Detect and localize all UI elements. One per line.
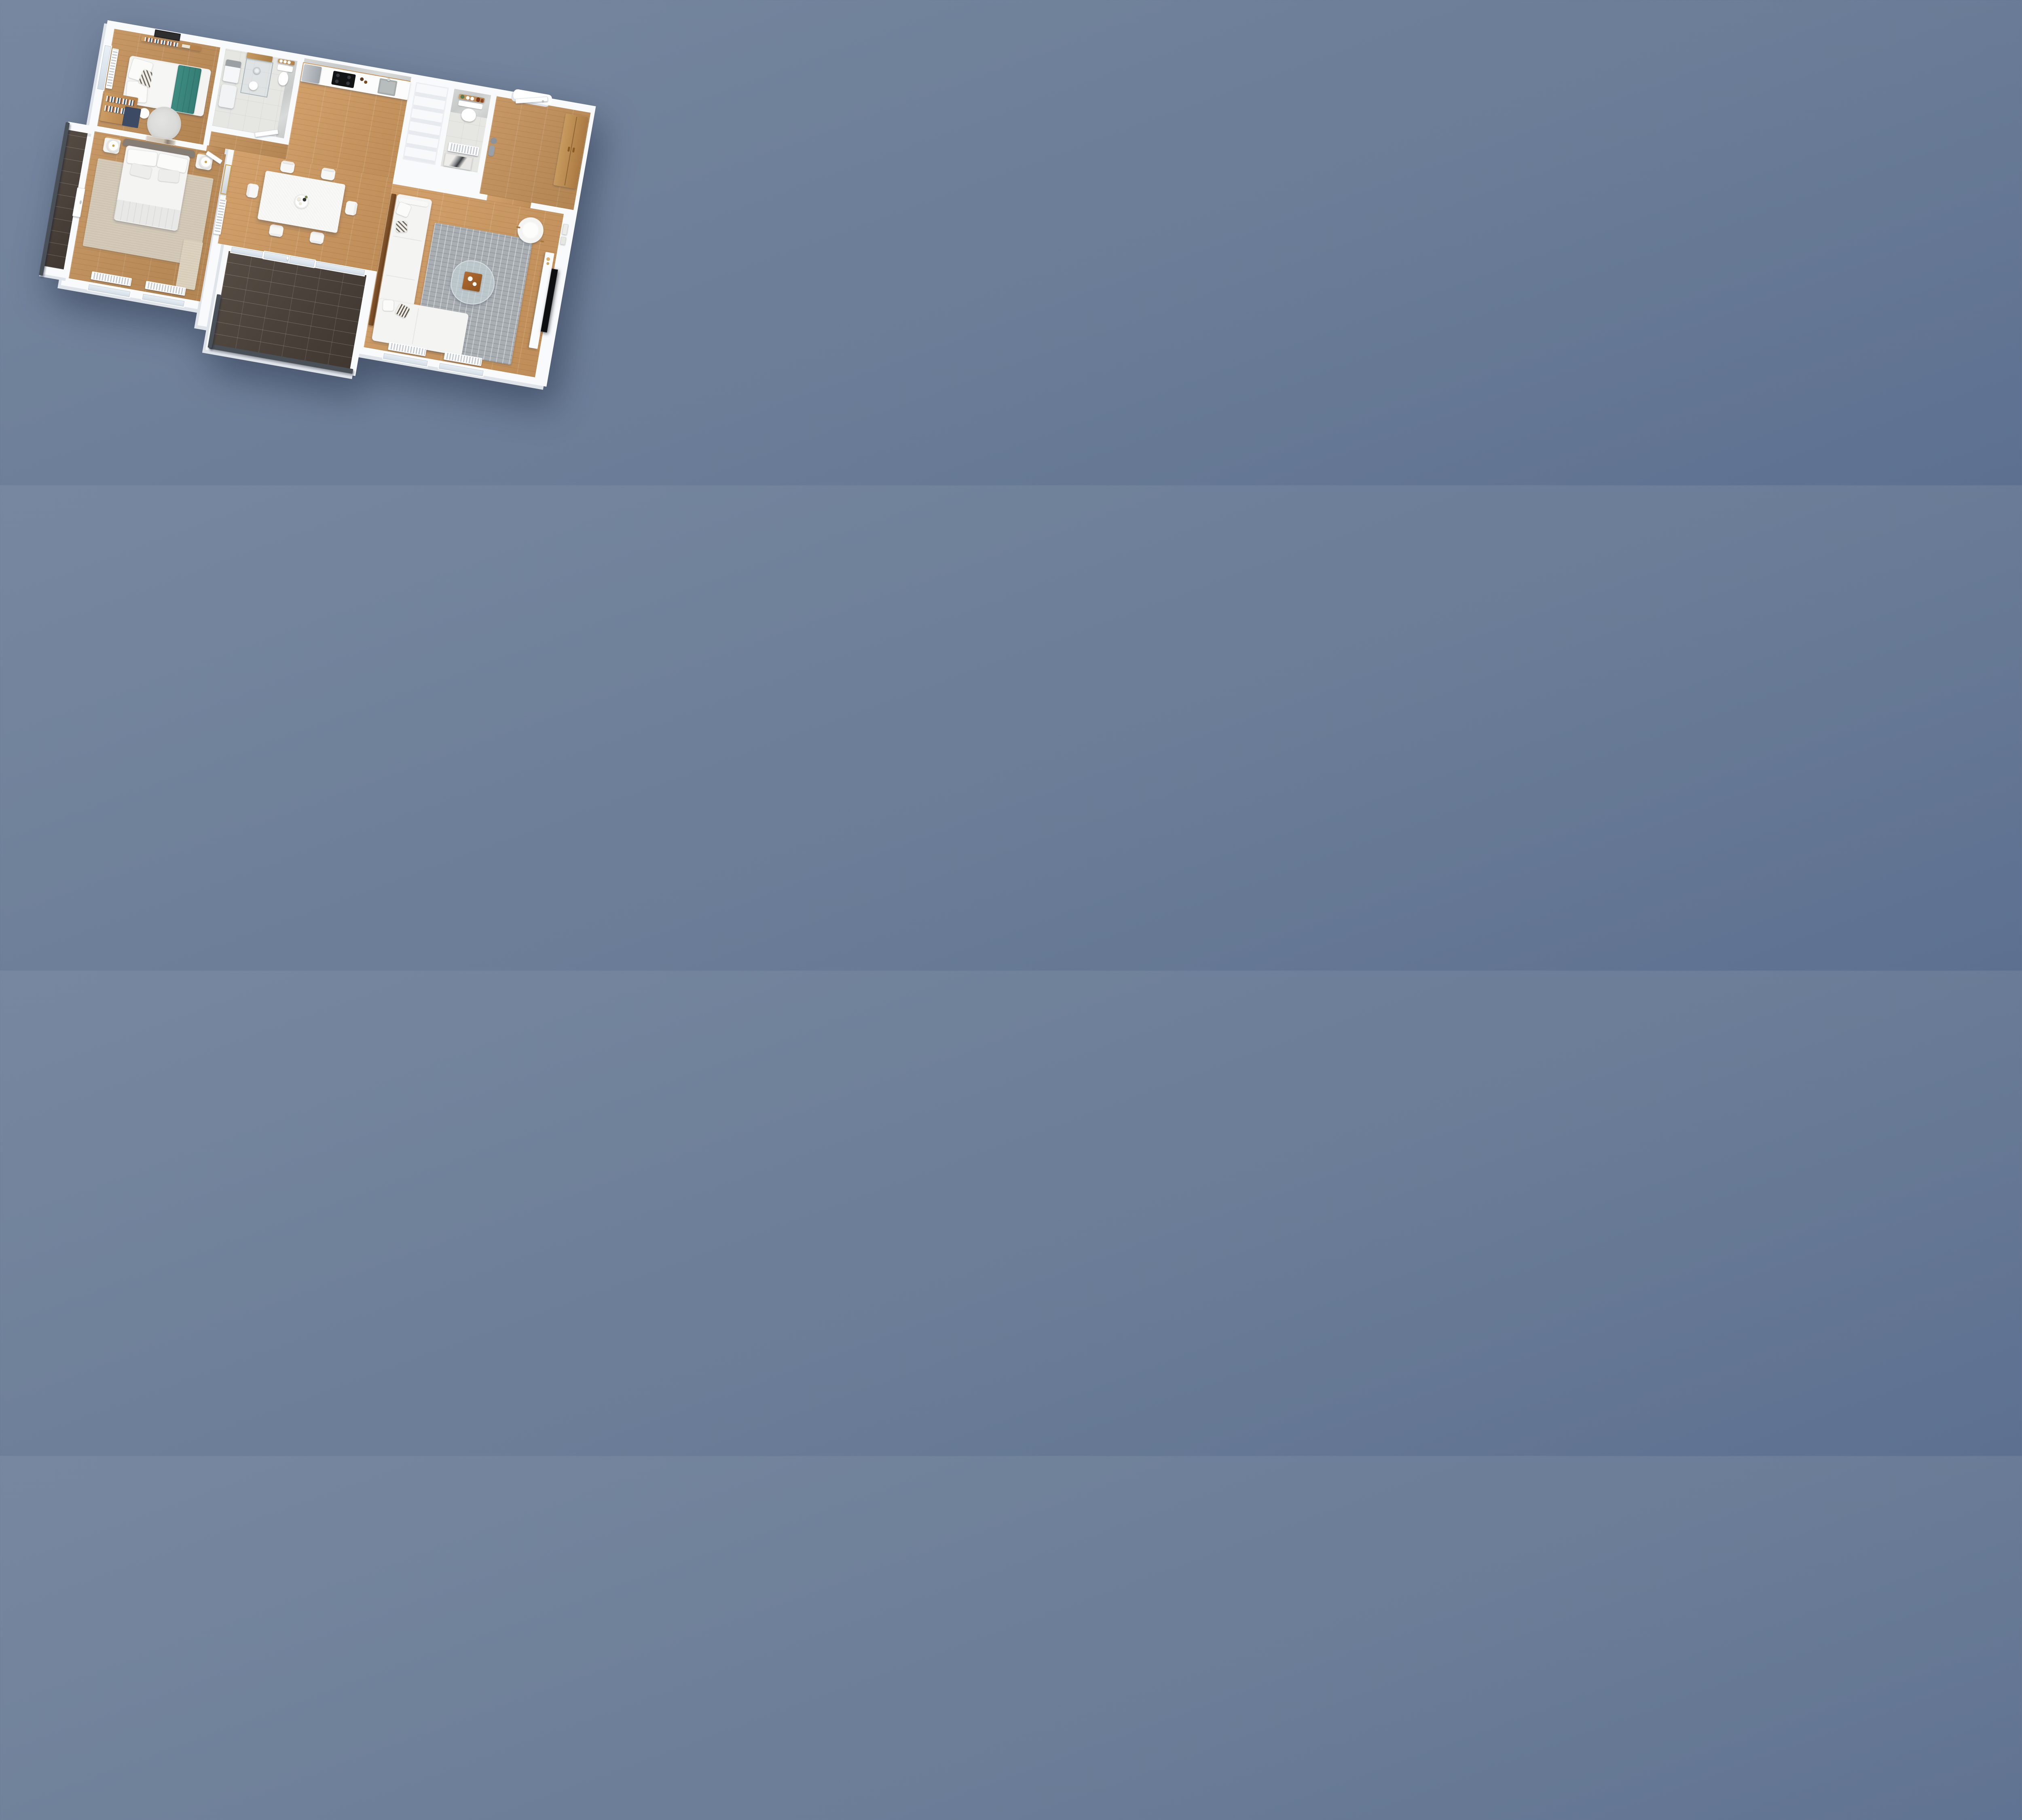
dining-chair xyxy=(269,224,284,237)
sofa-pillow xyxy=(383,300,394,311)
dining-chair xyxy=(309,231,324,244)
floor-plan xyxy=(30,16,617,417)
scene: { "scene": { "title": "3D rendered apart… xyxy=(0,0,607,485)
navy-mat xyxy=(122,106,141,128)
sofa-striped-pillow xyxy=(396,221,408,233)
fridge xyxy=(301,64,322,84)
dining-chair xyxy=(345,200,358,216)
bed-pillow-small xyxy=(158,169,180,183)
dining-chair xyxy=(320,167,336,181)
wooden-tray xyxy=(462,271,482,292)
dining-chair xyxy=(280,160,295,174)
